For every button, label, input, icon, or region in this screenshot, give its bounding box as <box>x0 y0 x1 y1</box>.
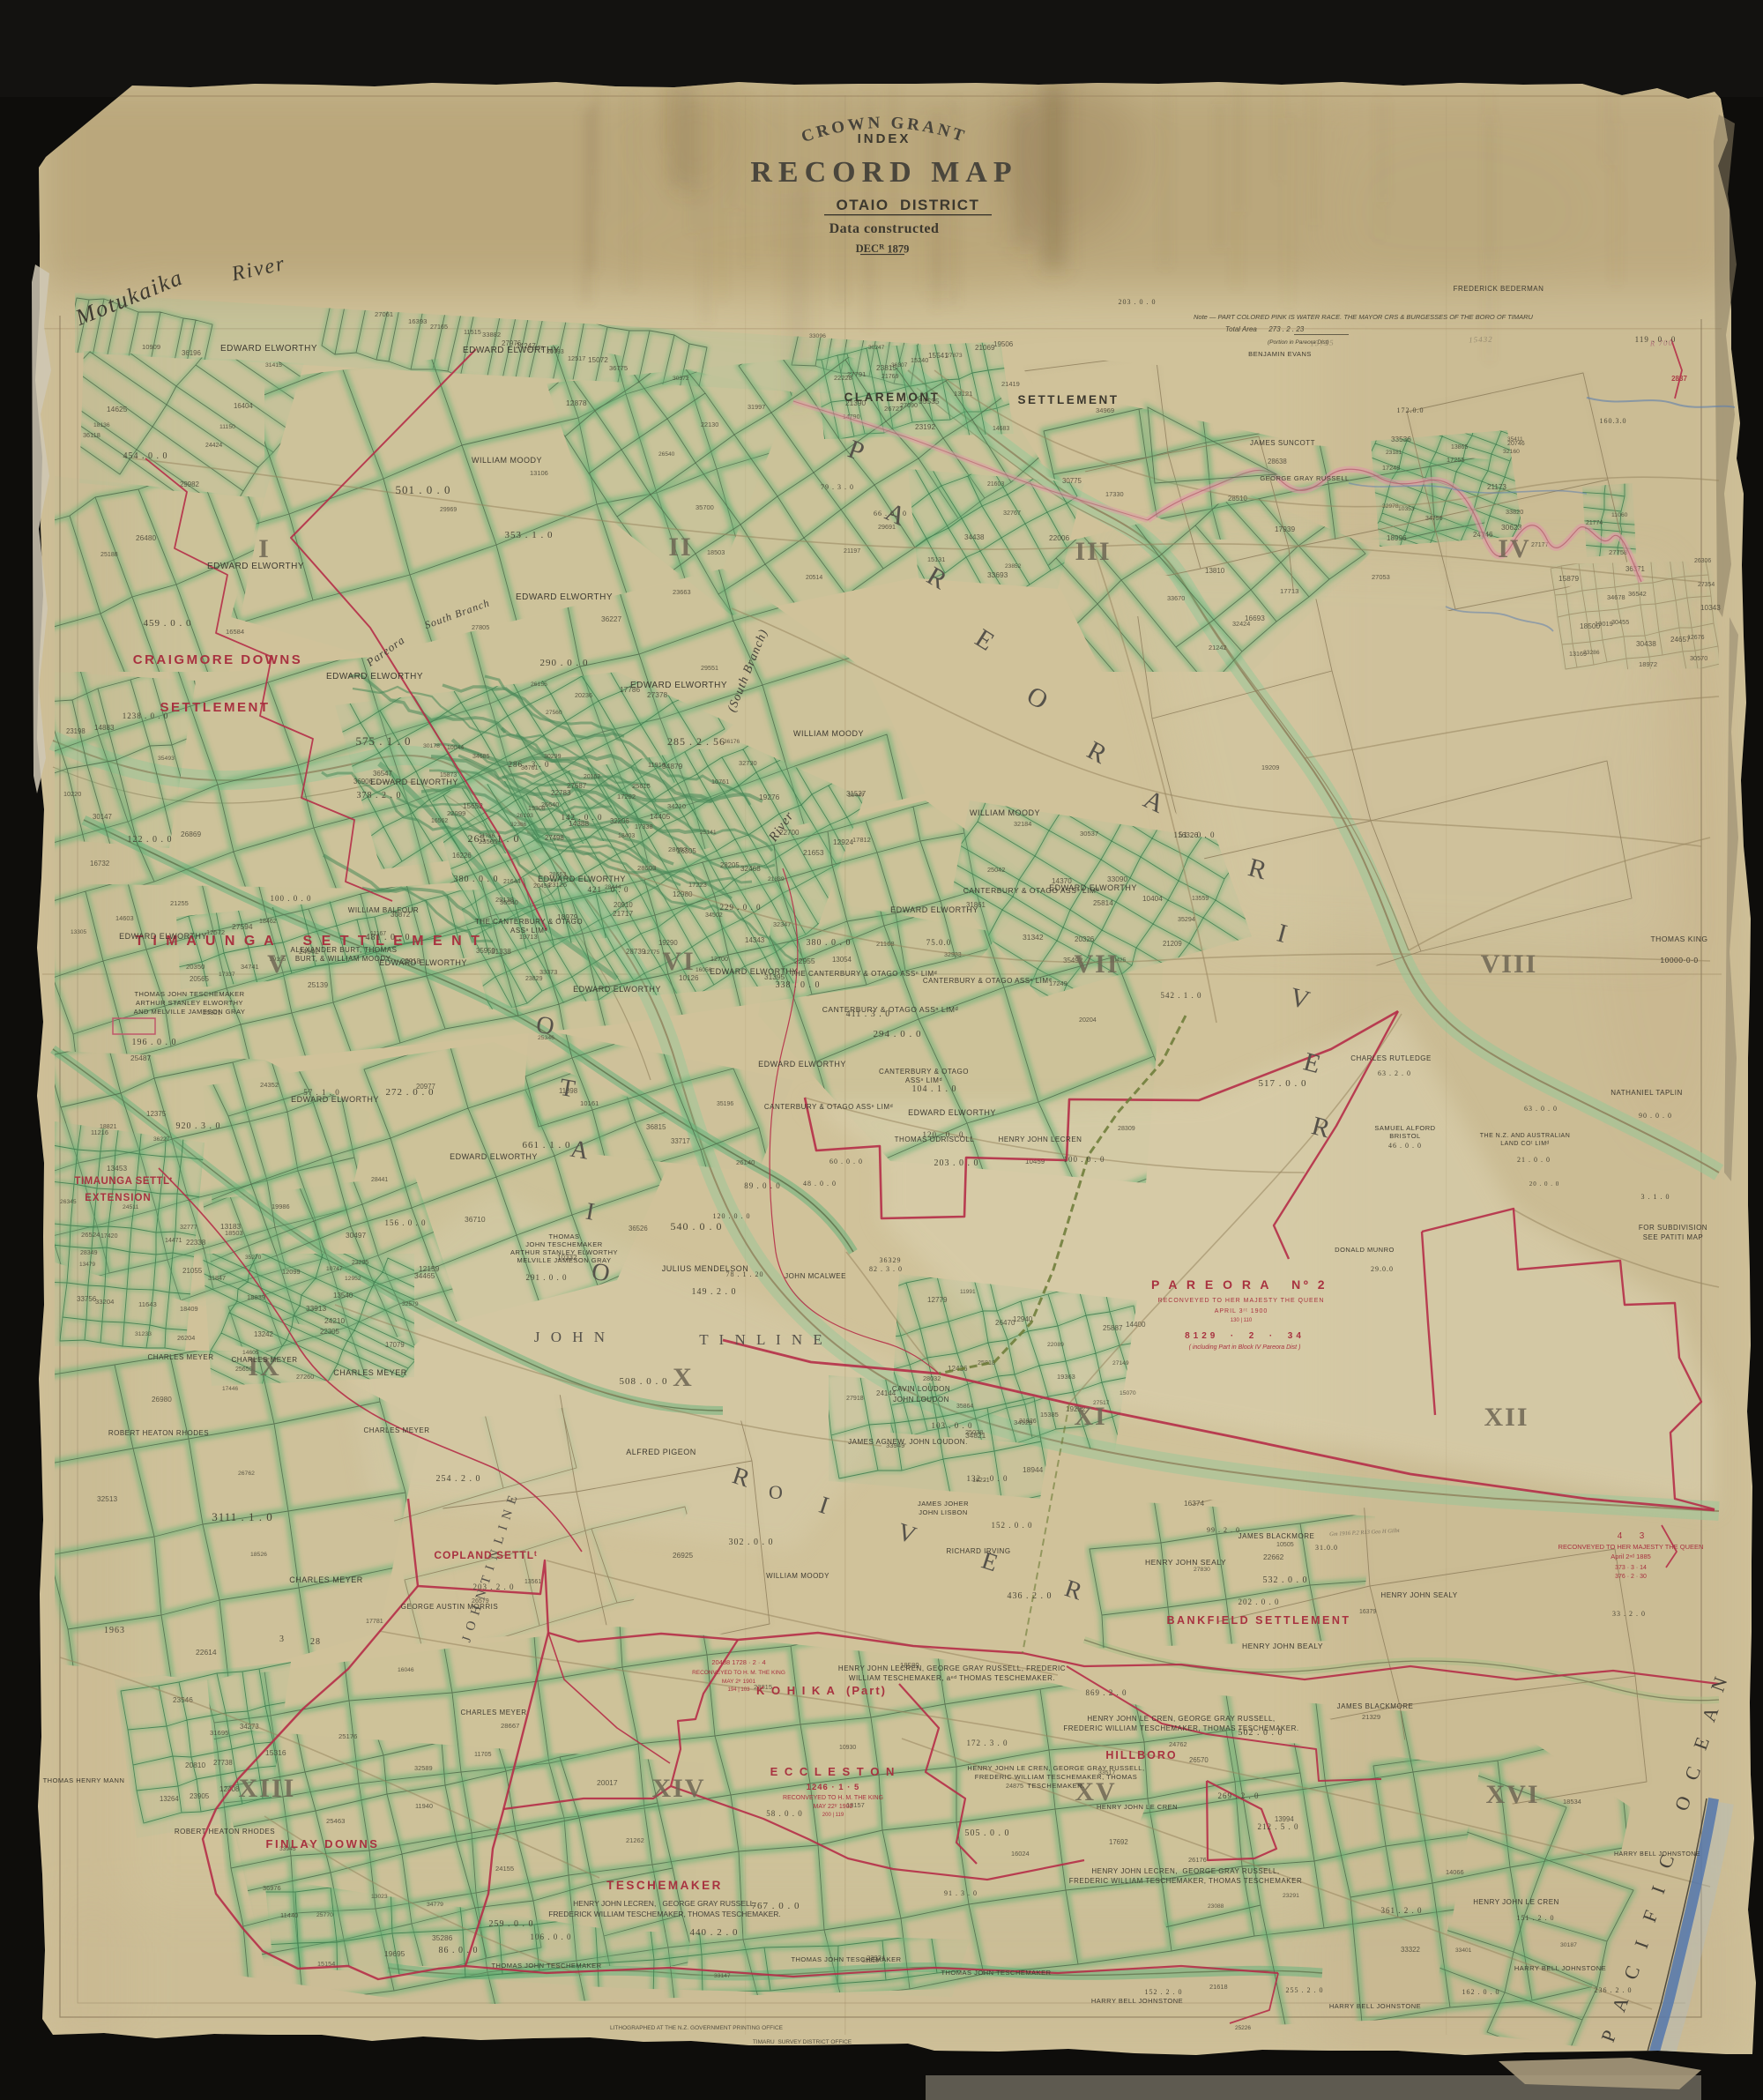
svg-text:26925: 26925 <box>673 1551 693 1560</box>
svg-text:17781: 17781 <box>366 1618 383 1625</box>
svg-text:J O H N: J O H N <box>534 1329 608 1345</box>
svg-text:24762: 24762 <box>1169 1740 1187 1748</box>
svg-text:454 . 0 . 0: 454 . 0 . 0 <box>123 451 168 461</box>
svg-text:23088: 23088 <box>1208 1903 1224 1910</box>
svg-text:21262: 21262 <box>626 1836 644 1844</box>
svg-text:12517: 12517 <box>568 354 585 362</box>
svg-text:10909: 10909 <box>142 343 160 351</box>
svg-text:26762: 26762 <box>238 1471 255 1477</box>
svg-text:14405: 14405 <box>650 812 671 821</box>
svg-text:18136: 18136 <box>93 422 110 428</box>
svg-text:29969: 29969 <box>440 507 457 513</box>
svg-text:202 . 0 . 0: 202 . 0 . 0 <box>1239 1597 1280 1606</box>
svg-text:30497: 30497 <box>346 1231 366 1240</box>
svg-text:27873: 27873 <box>946 353 963 359</box>
svg-text:31537: 31537 <box>846 790 867 798</box>
svg-text:22130: 22130 <box>701 421 718 428</box>
svg-text:63 . 2 . 0: 63 . 2 . 0 <box>1378 1069 1411 1077</box>
svg-text:440 . 2 . 0: 440 . 2 . 0 <box>690 1927 739 1938</box>
svg-text:32777: 32777 <box>180 1224 197 1231</box>
svg-text:18972: 18972 <box>1639 660 1657 668</box>
svg-text:27594: 27594 <box>232 922 253 931</box>
svg-text:24424: 24424 <box>205 443 222 449</box>
svg-text:23905: 23905 <box>190 1792 210 1800</box>
svg-text:20810: 20810 <box>185 1761 205 1769</box>
svg-text:12779: 12779 <box>927 1296 948 1304</box>
svg-text:21197: 21197 <box>844 547 860 555</box>
svg-text:29.0.0: 29.0.0 <box>1371 1265 1394 1273</box>
svg-text:16374: 16374 <box>1184 1499 1204 1508</box>
svg-text:DONALD MUNRO: DONALD MUNRO <box>1335 1246 1395 1254</box>
svg-text:30775: 30775 <box>1062 477 1082 485</box>
svg-text:27354: 27354 <box>1698 582 1715 588</box>
svg-text:25487: 25487 <box>130 1054 151 1062</box>
svg-text:459 . 0 . 0: 459 . 0 . 0 <box>144 618 192 629</box>
svg-text:27805: 27805 <box>472 623 489 631</box>
svg-text:3111 . 1 . 0: 3111 . 1 . 0 <box>212 1510 273 1523</box>
svg-text:15070: 15070 <box>1120 1390 1136 1396</box>
svg-text:1238 . 0 . 0: 1238 . 0 . 0 <box>123 711 169 720</box>
svg-text:27687: 27687 <box>567 782 587 790</box>
svg-text:10000·0·0: 10000·0·0 <box>1660 956 1698 964</box>
svg-text:EDWARD ELWORTHY: EDWARD ELWORTHY <box>207 562 304 571</box>
svg-text:CANTERBURY & OTAGO ASSⁿ LIMᵈ: CANTERBURY & OTAGO ASSⁿ LIMᵈ <box>963 886 1099 895</box>
svg-text:THE N.Z. AND AUSTRALIAN: THE N.Z. AND AUSTRALIAN <box>1480 1133 1571 1139</box>
svg-text:27560: 27560 <box>546 710 562 716</box>
svg-text:April 2ⁿᵈ 1885: April 2ⁿᵈ 1885 <box>1611 1553 1651 1560</box>
svg-text:32160: 32160 <box>1503 449 1520 455</box>
svg-text:151 . 0 . 0: 151 . 0 . 0 <box>1174 830 1216 839</box>
svg-text:BURT, & WILLIAM MOODY.: BURT, & WILLIAM MOODY. <box>295 955 392 963</box>
svg-text:THE CANTERBURY & OTAGO ASSⁿ LI: THE CANTERBURY & OTAGO ASSⁿ LIMᵈ <box>791 970 937 978</box>
svg-text:CHARLES MEYER: CHARLES MEYER <box>333 1368 407 1377</box>
svg-text:RECORD MAP: RECORD MAP <box>750 156 1017 189</box>
svg-text:10747: 10747 <box>326 1266 343 1272</box>
svg-text:EDWARD ELWORTHY: EDWARD ELWORTHY <box>630 681 727 690</box>
svg-text:11440: 11440 <box>280 1911 298 1919</box>
svg-text:CRAIGMORE DOWNS: CRAIGMORE DOWNS <box>133 652 303 667</box>
svg-text:421 . 0 . 0: 421 . 0 . 0 <box>588 885 629 894</box>
svg-text:15240: 15240 <box>911 356 928 364</box>
svg-text:21618: 21618 <box>1209 1983 1228 1991</box>
svg-text:767 . 0 . 0: 767 . 0 . 0 <box>752 1901 800 1911</box>
svg-text:VII: VII <box>1074 949 1119 979</box>
svg-text:RECONVEYED TO H. M. THE KING: RECONVEYED TO H. M. THE KING <box>783 1795 883 1801</box>
svg-text:27061: 27061 <box>375 310 393 318</box>
svg-text:31.0.0: 31.0.0 <box>1315 1544 1338 1552</box>
svg-text:VI: VI <box>662 947 695 976</box>
svg-text:46 . 0 . 0: 46 . 0 . 0 <box>1388 1142 1422 1150</box>
svg-text:BRISTOL: BRISTOL <box>1389 1132 1420 1140</box>
svg-text:17337: 17337 <box>219 972 235 978</box>
svg-text:24875: 24875 <box>1006 1782 1023 1790</box>
svg-text:CANTERBURY & OTAGO ASSⁿ LIMᵈ: CANTERBURY & OTAGO ASSⁿ LIMᵈ <box>764 1103 893 1111</box>
svg-text:15072: 15072 <box>588 356 608 364</box>
svg-text:SETTLEMENT: SETTLEMENT <box>160 700 271 715</box>
svg-text:BENJAMIN EVANS: BENJAMIN EVANS <box>1248 350 1312 358</box>
svg-text:18526: 18526 <box>250 1552 267 1558</box>
svg-text:WILLIAM MOODY: WILLIAM MOODY <box>766 1572 829 1580</box>
svg-text:20204: 20204 <box>1079 1016 1097 1024</box>
svg-text:17420: 17420 <box>100 1233 118 1240</box>
svg-text:21255: 21255 <box>170 899 189 907</box>
svg-text:17446: 17446 <box>222 1386 238 1392</box>
svg-text:19209: 19209 <box>1261 763 1279 771</box>
svg-text:25226: 25226 <box>1235 2025 1251 2031</box>
svg-text:28349: 28349 <box>80 1250 98 1256</box>
svg-text:20350: 20350 <box>186 963 205 971</box>
svg-text:18500: 18500 <box>1580 622 1600 630</box>
svg-text:HENRY JOHN LE CREN: HENRY JOHN LE CREN <box>1473 1898 1559 1906</box>
svg-text:481 . 0 . 0: 481 . 0 . 0 <box>366 933 411 942</box>
svg-text:31997: 31997 <box>748 403 765 411</box>
svg-text:CLAREMONT: CLAREMONT <box>844 391 941 404</box>
svg-text:10044: 10044 <box>447 745 464 751</box>
svg-text:EDWARD ELWORTHY: EDWARD ELWORTHY <box>119 932 207 941</box>
svg-text:FREDERICK BEDERMAN: FREDERICK BEDERMAN <box>1454 285 1544 293</box>
svg-text:III: III <box>1075 537 1111 566</box>
svg-text:31415: 31415 <box>265 362 282 369</box>
svg-text:14471: 14471 <box>165 1238 182 1244</box>
svg-text:12878: 12878 <box>566 398 587 407</box>
svg-text:HENRY JOHN LECREN, GEORGE GR: HENRY JOHN LECREN, GEORGE GRAY RUSSELL, <box>573 1899 756 1908</box>
svg-text:17692: 17692 <box>1109 1838 1128 1846</box>
svg-text:10161: 10161 <box>580 1099 599 1107</box>
svg-text:33536: 33536 <box>1391 436 1411 443</box>
svg-text:APRIL 3ʳᵗ 1900: APRIL 3ʳᵗ 1900 <box>1215 1308 1268 1314</box>
svg-text:353 . 1 . 0: 353 . 1 . 0 <box>505 530 554 540</box>
svg-text:ROBERT HEATON RHODES: ROBERT HEATON RHODES <box>175 1828 275 1836</box>
svg-text:12700: 12700 <box>710 955 728 963</box>
svg-text:28638: 28638 <box>1268 458 1287 465</box>
svg-text:25887: 25887 <box>1103 1324 1123 1332</box>
svg-text:XVI: XVI <box>1485 1780 1539 1809</box>
svg-text:HENRY JOHN LE CREN: HENRY JOHN LE CREN <box>1097 1803 1178 1811</box>
svg-text:290 . 0 . 0: 290 . 0 . 0 <box>540 658 589 668</box>
svg-text:XII: XII <box>1484 1403 1529 1432</box>
svg-text:14683: 14683 <box>993 426 1009 432</box>
svg-text:11705: 11705 <box>474 1750 491 1758</box>
svg-text:26176: 26176 <box>1188 1856 1207 1864</box>
svg-text:33373: 33373 <box>539 968 557 976</box>
svg-text:30247: 30247 <box>868 345 885 351</box>
svg-text:89 . 0 . 0: 89 . 0 . 0 <box>744 1181 781 1190</box>
svg-text:15735: 15735 <box>1310 339 1335 348</box>
svg-text:10343: 10343 <box>1700 604 1721 612</box>
svg-text:156 . 0 . 0: 156 . 0 . 0 <box>385 1218 427 1227</box>
svg-text:33096: 33096 <box>809 333 826 339</box>
svg-text:23663: 23663 <box>673 588 691 596</box>
svg-text:254 . 2 . 0: 254 . 2 . 0 <box>436 1474 481 1484</box>
svg-text:10404: 10404 <box>1142 895 1163 903</box>
svg-text:23815: 23815 <box>876 363 896 372</box>
svg-text:13183: 13183 <box>220 1222 241 1231</box>
svg-text:196 . 0 . 0: 196 . 0 . 0 <box>132 1038 177 1047</box>
svg-text:19276: 19276 <box>759 793 780 801</box>
svg-text:34502: 34502 <box>705 912 723 919</box>
svg-text:575 . 1 . 0: 575 . 1 . 0 <box>356 734 412 748</box>
svg-text:23198: 23198 <box>66 727 86 735</box>
svg-text:33204: 33204 <box>95 1298 115 1306</box>
svg-text:36227: 36227 <box>601 614 621 623</box>
svg-text:12676: 12676 <box>1687 635 1705 641</box>
svg-text:20017: 20017 <box>597 1778 618 1787</box>
svg-text:O: O <box>769 1481 783 1503</box>
svg-text:26140: 26140 <box>736 1158 755 1166</box>
svg-text:203 . 0 . 0: 203 . 0 . 0 <box>934 1158 979 1168</box>
svg-text:20910: 20910 <box>614 901 633 909</box>
svg-text:2837: 2837 <box>1671 375 1687 383</box>
svg-text:36815: 36815 <box>646 1123 666 1131</box>
svg-text:12775: 12775 <box>643 949 660 956</box>
svg-text:17079: 17079 <box>385 1341 405 1349</box>
svg-text:25141: 25141 <box>700 830 717 836</box>
svg-text:Nоte — PART COLORED PINK IS WA: Nоte — PART COLORED PINK IS WATER RACE. … <box>1194 313 1534 321</box>
svg-text:21419: 21419 <box>1001 380 1020 388</box>
svg-text:15316: 15316 <box>265 1748 286 1757</box>
svg-text:14625: 14625 <box>107 405 128 413</box>
svg-text:21209: 21209 <box>1163 940 1182 948</box>
svg-text:34210: 34210 <box>667 802 686 810</box>
svg-text:285 . 2 . 56: 285 . 2 . 56 <box>667 735 725 748</box>
svg-text:34438: 34438 <box>964 533 985 541</box>
svg-text:31695: 31695 <box>210 1729 228 1737</box>
svg-text:152 . 2 . 0: 152 . 2 . 0 <box>1145 1988 1183 1996</box>
svg-text:ALFRED PIGEON: ALFRED PIGEON <box>626 1448 696 1456</box>
svg-text:17939: 17939 <box>1275 525 1295 533</box>
svg-text:30455: 30455 <box>1611 618 1629 626</box>
svg-text:LAND COᵗ LIMᵈ: LAND COᵗ LIMᵈ <box>1500 1141 1549 1147</box>
svg-text:EDWARD ELWORTHY: EDWARD ELWORTHY <box>758 1060 846 1069</box>
svg-text:34756: 34756 <box>1425 516 1443 522</box>
svg-text:35286: 35286 <box>432 1933 453 1942</box>
svg-text:16732: 16732 <box>90 860 110 868</box>
svg-text:36542: 36542 <box>1628 590 1647 598</box>
svg-text:1246 · 1 · 5: 1246 · 1 · 5 <box>807 1783 860 1792</box>
svg-text:XIII: XIII <box>239 1774 296 1803</box>
svg-text:TESCHEMAKER.: TESCHEMAKER. <box>1027 1782 1084 1790</box>
svg-text:35864: 35864 <box>956 1404 973 1410</box>
svg-text:35700: 35700 <box>696 503 714 511</box>
svg-text:V: V <box>267 949 288 979</box>
svg-text:26155: 26155 <box>531 681 547 688</box>
svg-text:20488 1728 · 2 · 4: 20488 1728 · 2 · 4 <box>711 1658 765 1666</box>
svg-text:( including Part in Block IV P: ( including Part in Block IV Pareora Dis… <box>1189 1344 1301 1351</box>
svg-text:27830: 27830 <box>1194 1567 1210 1573</box>
svg-text:36227: 36227 <box>153 1136 170 1143</box>
svg-text:FREDERIC WILLIAM TESCHEMAKER,: FREDERIC WILLIAM TESCHEMAKER, THOMAS <box>975 1773 1137 1781</box>
svg-text:90 . 0 . 0: 90 . 0 . 0 <box>1639 1112 1672 1120</box>
svg-text:22338: 22338 <box>186 1239 206 1247</box>
svg-text:34779: 34779 <box>427 1902 443 1908</box>
svg-text:MAY 22ᵗʳ 1902: MAY 22ᵗʳ 1902 <box>814 1804 853 1810</box>
svg-text:13810: 13810 <box>1205 567 1225 575</box>
svg-text:18821: 18821 <box>100 1124 117 1130</box>
svg-text:17338: 17338 <box>635 823 653 830</box>
svg-text:380 . 0 . 0: 380 . 0 . 0 <box>454 875 499 884</box>
svg-text:376 · 2 · 30: 376 · 2 · 30 <box>1615 1574 1647 1580</box>
svg-text:920 . 3 . 0: 920 . 3 . 0 <box>176 1121 221 1131</box>
svg-text:21717: 21717 <box>613 909 633 918</box>
svg-text:22006: 22006 <box>1049 533 1069 542</box>
svg-text:60 . 0 . 0: 60 . 0 . 0 <box>829 1158 863 1165</box>
svg-text:T I N L I N E: T I N L I N E <box>699 1331 826 1348</box>
svg-text:120 . 0 . 0: 120 . 0 . 0 <box>923 1130 964 1139</box>
svg-text:30178: 30178 <box>423 743 440 749</box>
svg-text:32767: 32767 <box>1003 509 1021 517</box>
svg-text:26345: 26345 <box>60 1199 77 1205</box>
svg-text:FINLAY DOWNS: FINLAY DOWNS <box>266 1837 380 1851</box>
svg-text:THOMAS KING: THOMAS KING <box>1650 935 1707 943</box>
svg-text:149 . 2 . 0: 149 . 2 . 0 <box>692 1287 737 1297</box>
svg-text:28441: 28441 <box>371 1177 388 1183</box>
svg-text:13865: 13865 <box>1451 444 1468 451</box>
svg-text:28667: 28667 <box>501 1722 519 1730</box>
svg-text:33820: 33820 <box>1506 508 1523 516</box>
svg-text:E C C L E S T O N: E C C L E S T O N <box>770 1765 896 1778</box>
svg-text:WILLIAM MOODY: WILLIAM MOODY <box>970 808 1040 817</box>
svg-text:JAMES SUNCOTT: JAMES SUNCOTT <box>1250 439 1315 447</box>
svg-text:HILLBORO: HILLBORO <box>1105 1749 1177 1761</box>
svg-text:22099: 22099 <box>447 809 465 817</box>
svg-text:25188: 25188 <box>100 551 118 558</box>
svg-text:378 . 2 . 0: 378 . 2 . 0 <box>357 791 402 801</box>
svg-text:I: I <box>258 534 271 563</box>
svg-text:13264: 13264 <box>160 1795 179 1803</box>
svg-text:82 . 3 . 0: 82 . 3 . 0 <box>869 1265 903 1273</box>
svg-text:15432: 15432 <box>1469 335 1493 345</box>
svg-text:11060: 11060 <box>1611 512 1628 518</box>
svg-text:302 . 0 . 0: 302 . 0 . 0 <box>729 1538 774 1547</box>
svg-text:19986: 19986 <box>272 1203 290 1210</box>
svg-text:104 . 1 . 0: 104 . 1 . 0 <box>912 1084 957 1094</box>
svg-text:33882: 33882 <box>482 331 501 339</box>
svg-text:36710: 36710 <box>465 1215 486 1224</box>
svg-text:4 3: 4 3 <box>1618 1531 1645 1541</box>
svg-text:18503: 18503 <box>707 548 725 556</box>
svg-text:10220: 10220 <box>63 790 81 798</box>
svg-text:CHARLES MEYER: CHARLES MEYER <box>232 1356 298 1364</box>
svg-text:LITHOGRAPHED AT THE N.Z. GOVER: LITHOGRAPHED AT THE N.Z. GOVERNMENT PRIN… <box>610 2025 784 2031</box>
svg-text:18996: 18996 <box>1387 534 1407 542</box>
svg-text:24511: 24511 <box>123 1204 139 1210</box>
svg-text:18944: 18944 <box>1023 1465 1044 1474</box>
svg-text:ASSⁿ LIMᵈ: ASSⁿ LIMᵈ <box>510 927 547 935</box>
svg-text:EDWARD ELWORTHY: EDWARD ELWORTHY <box>890 905 978 914</box>
svg-text:255 . 2 . 0: 255 . 2 . 0 <box>1286 1986 1324 1994</box>
svg-text:160.3.0: 160.3.0 <box>1600 417 1627 425</box>
svg-text:JAMES BLACKMORE: JAMES BLACKMORE <box>1337 1702 1414 1710</box>
svg-text:36040: 36040 <box>500 898 518 906</box>
svg-text:22305: 22305 <box>320 1328 340 1336</box>
svg-text:31233: 31233 <box>135 1331 152 1337</box>
svg-text:27165: 27165 <box>430 323 448 331</box>
svg-text:35196: 35196 <box>717 1101 733 1107</box>
svg-text:27149: 27149 <box>1112 1360 1129 1366</box>
svg-text:32347: 32347 <box>773 920 791 928</box>
svg-text:21173: 21173 <box>1487 483 1506 491</box>
svg-text:31342: 31342 <box>1023 933 1044 942</box>
svg-text:21242: 21242 <box>1209 644 1227 652</box>
svg-text:FREDERIC WILLIAM TESCHEMAKER,: FREDERIC WILLIAM TESCHEMAKER, THOMAS TES… <box>1069 1877 1302 1885</box>
svg-text:ASSⁿ LIMᵈ: ASSⁿ LIMᵈ <box>905 1076 942 1084</box>
svg-text:13054: 13054 <box>832 956 852 964</box>
svg-text:26193: 26193 <box>517 813 533 819</box>
svg-text:THOMAS JOHN TESCHEMAKER: THOMAS JOHN TESCHEMAKER <box>791 1955 901 1963</box>
svg-text:26640: 26640 <box>541 801 559 808</box>
svg-text:11940: 11940 <box>415 1802 433 1810</box>
svg-text:411 . 3 . 0: 411 . 3 . 0 <box>846 1009 891 1019</box>
svg-text:12375: 12375 <box>146 1110 167 1118</box>
svg-text:23295: 23295 <box>352 1260 368 1266</box>
svg-text:294 . 0 . 0: 294 . 0 . 0 <box>874 1029 922 1039</box>
svg-text:GEORGE AUSTIN MORRIS: GEORGE AUSTIN MORRIS <box>401 1603 498 1611</box>
svg-text:30372: 30372 <box>673 376 689 382</box>
svg-text:HENRY JOHN LECREN, GEORGE GRAY: HENRY JOHN LECREN, GEORGE GRAY RUSSELL, … <box>838 1664 1066 1672</box>
svg-text:19290: 19290 <box>658 939 678 947</box>
svg-text:SETTLEMENT: SETTLEMENT <box>1018 393 1120 406</box>
svg-text:THOMAS JOHN TESCHEMAKER: THOMAS JOHN TESCHEMAKER <box>941 1969 1051 1977</box>
svg-text:29982: 29982 <box>180 480 199 488</box>
svg-text:20746: 20746 <box>1507 440 1525 447</box>
svg-text:21644: 21644 <box>503 879 521 885</box>
svg-text:EDWARD ELWORTHY: EDWARD ELWORTHY <box>710 967 798 976</box>
svg-text:JOHN LOUDON: JOHN LOUDON <box>893 1396 949 1404</box>
svg-text:13453: 13453 <box>107 1164 127 1173</box>
svg-text:162 . 0 . 0: 162 . 0 . 0 <box>1462 1988 1500 1996</box>
svg-text:16584: 16584 <box>226 628 244 636</box>
svg-text:33147: 33147 <box>714 1973 731 1979</box>
svg-text:21769: 21769 <box>881 374 899 380</box>
svg-text:WILLIAM TESCHEMAKER, аⁿᵈ THOMA: WILLIAM TESCHEMAKER, аⁿᵈ THOMAS TESCHEMA… <box>849 1674 1055 1682</box>
svg-text:EDWARD ELWORTHY: EDWARD ELWORTHY <box>450 1152 538 1161</box>
svg-text:16393: 16393 <box>408 317 427 325</box>
svg-text:100 . 0 . 0: 100 . 0 . 0 <box>1064 1155 1105 1164</box>
svg-text:35270: 35270 <box>245 1255 262 1261</box>
svg-text:119 . 0 . 0: 119 . 0 . 0 <box>1635 335 1677 344</box>
svg-text:35294: 35294 <box>1178 916 1195 923</box>
svg-text:32386: 32386 <box>510 822 527 828</box>
svg-text:26540: 26540 <box>658 451 675 458</box>
svg-text:13559: 13559 <box>1192 896 1209 902</box>
svg-text:286 . 3 . 0: 286 . 3 . 0 <box>509 760 550 769</box>
svg-text:132 . 0 . 0: 132 . 0 . 0 <box>967 1474 1008 1483</box>
svg-text:23852: 23852 <box>1005 563 1022 570</box>
svg-text:36176: 36176 <box>724 739 740 745</box>
svg-text:IV: IV <box>1498 534 1530 563</box>
svg-text:RECONVEYED TO HER MAJESTY THE: RECONVEYED TO HER MAJESTY THE QUEEN <box>1558 1543 1704 1551</box>
svg-text:CANTERBURY & OTAGO: CANTERBURY & OTAGO <box>879 1068 969 1076</box>
svg-text:HENRY JOHN BEALY: HENRY JOHN BEALY <box>1242 1642 1323 1650</box>
svg-text:EDWARD ELWORTHY: EDWARD ELWORTHY <box>516 592 613 602</box>
svg-text:361 . 2 . 0: 361 . 2 . 0 <box>1381 1906 1423 1915</box>
svg-text:XIV: XIV <box>651 1774 705 1803</box>
svg-text:HENRY JOHN LE CREN, GEORGE GRA: HENRY JOHN LE CREN, GEORGE GRAY RUSSELL, <box>967 1764 1144 1772</box>
svg-text:33717: 33717 <box>671 1137 690 1145</box>
svg-text:21774: 21774 <box>1586 520 1603 526</box>
svg-text:33 . 2 . 0: 33 . 2 . 0 <box>1612 1610 1646 1618</box>
svg-text:661 . 1 . 0: 661 . 1 . 0 <box>523 1140 571 1151</box>
svg-text:26204: 26204 <box>177 1334 195 1342</box>
svg-text:23546: 23546 <box>173 1696 193 1704</box>
svg-text:13305: 13305 <box>71 929 86 935</box>
svg-text:532 . 0 . 0: 532 . 0 . 0 <box>1263 1575 1308 1585</box>
svg-text:HENRY JOHN LE CREN, GEORGE GRA: HENRY JOHN LE CREN, GEORGE GRAY RUSSELL, <box>1087 1715 1275 1723</box>
svg-text:JOHN MCALWEE: JOHN MCALWEE <box>785 1272 846 1280</box>
svg-text:VIII: VIII <box>1481 949 1538 979</box>
svg-text:229 . 0 . 0: 229 . 0 . 0 <box>720 903 762 912</box>
svg-text:14400: 14400 <box>1126 1321 1146 1329</box>
